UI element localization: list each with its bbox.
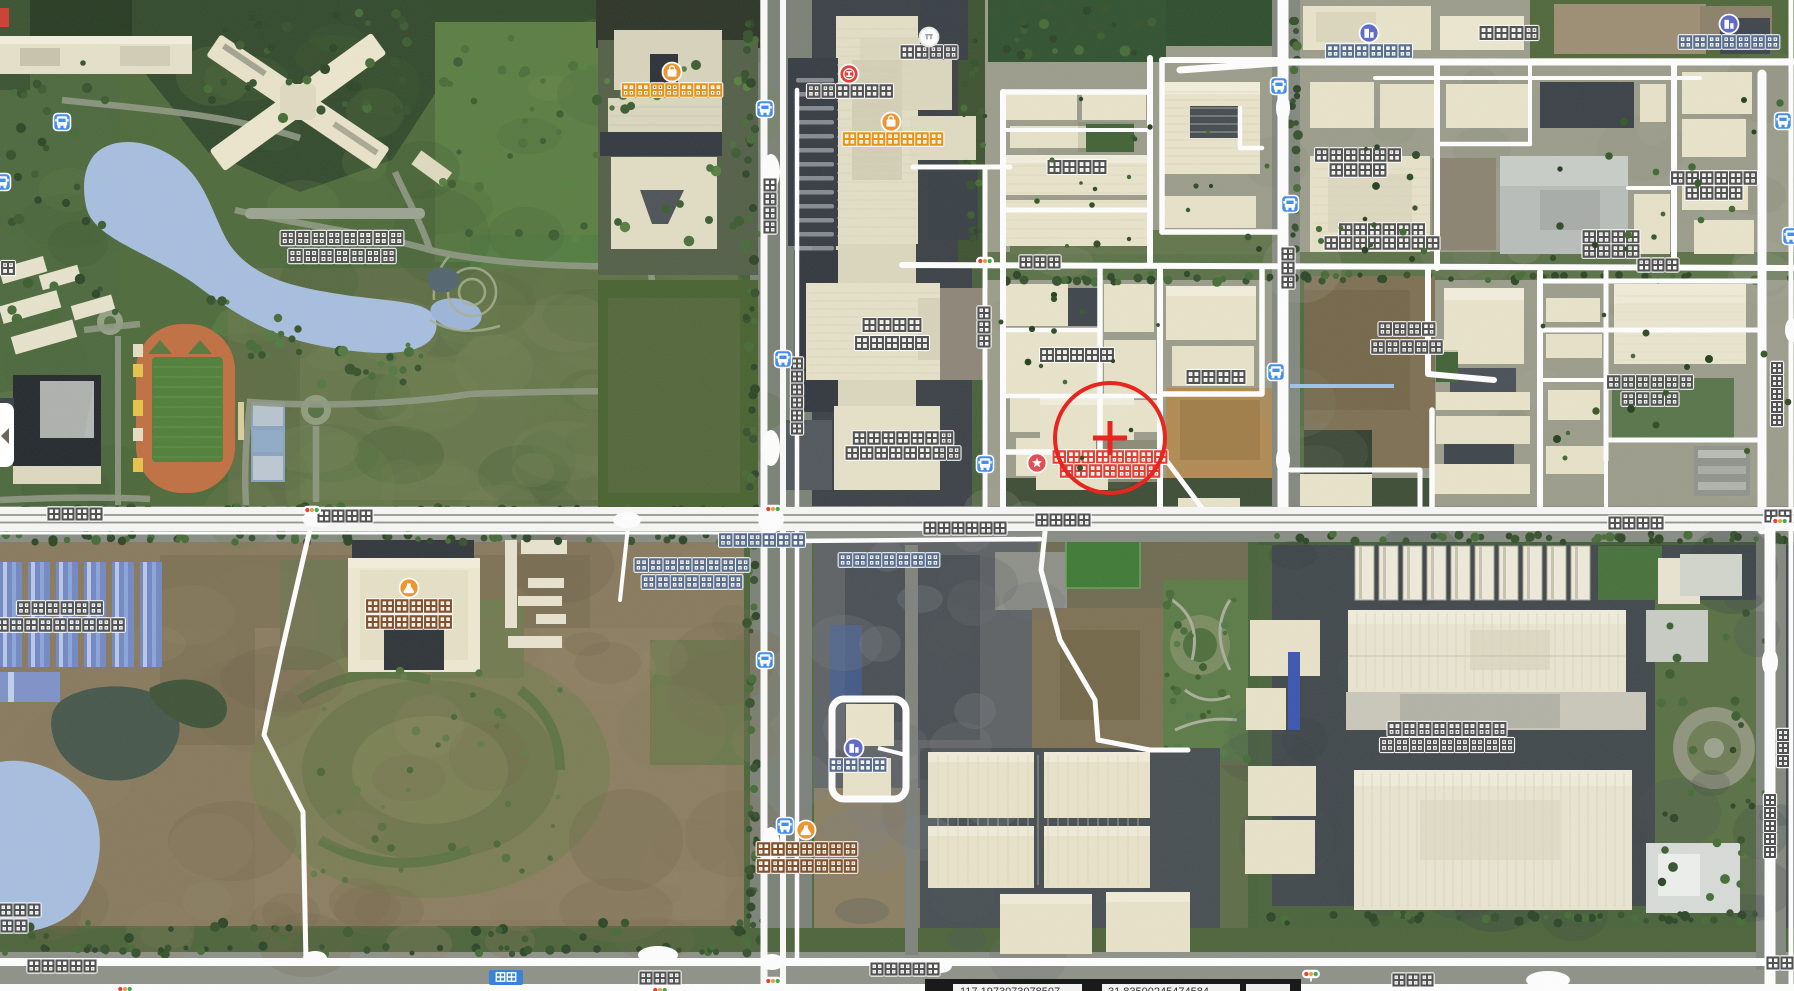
svg-text:117.1973073078507: 117.1973073078507 — [960, 986, 1060, 991]
svg-text:31.83500245474584: 31.83500245474584 — [1108, 986, 1209, 991]
